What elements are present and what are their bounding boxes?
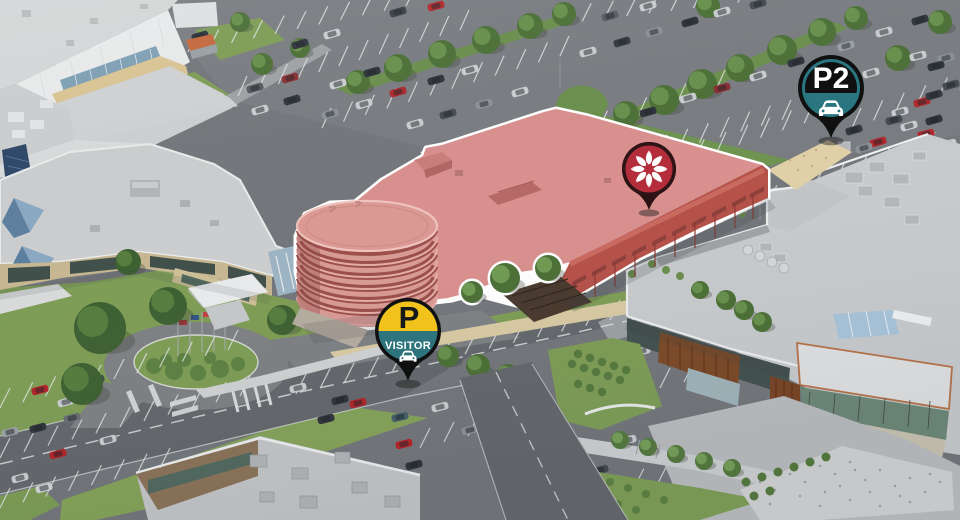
svg-text:P: P	[399, 300, 420, 335]
svg-text:P2: P2	[813, 62, 850, 95]
svg-text:VISITOR: VISITOR	[385, 340, 431, 352]
